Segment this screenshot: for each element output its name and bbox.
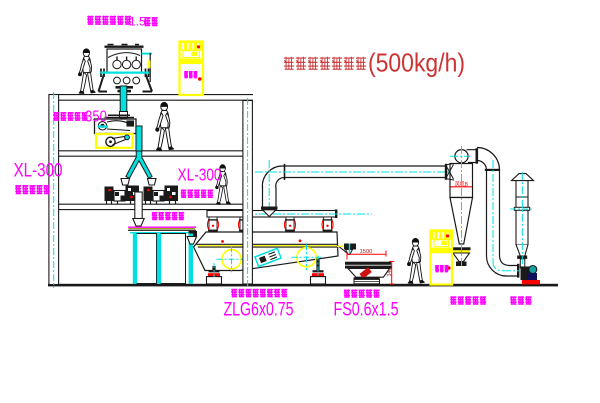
svg-text:ZLG6x0.75: ZLG6x0.75 bbox=[224, 299, 294, 321]
svg-text:1.5: 1.5 bbox=[129, 15, 146, 29]
svg-text:350: 350 bbox=[85, 109, 107, 126]
svg-text:(500kg/h): (500kg/h) bbox=[368, 48, 465, 78]
svg-text:1500: 1500 bbox=[360, 249, 373, 255]
svg-text:FS0.6x1.5: FS0.6x1.5 bbox=[334, 299, 399, 321]
svg-text:XL-300: XL-300 bbox=[178, 165, 222, 185]
svg-text:XL-300: XL-300 bbox=[14, 161, 63, 182]
